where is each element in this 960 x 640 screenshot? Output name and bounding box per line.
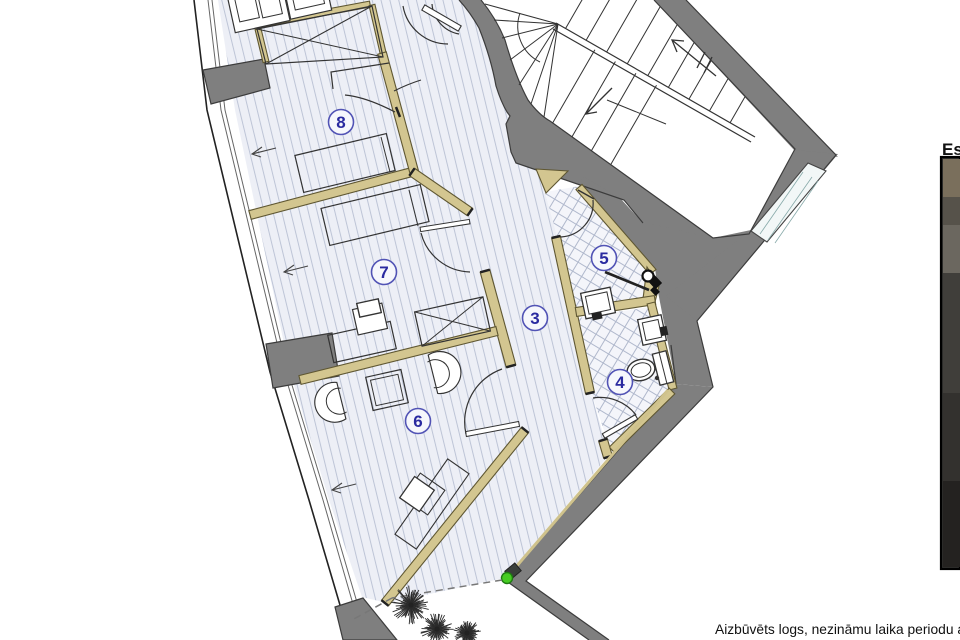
svg-text:8: 8 xyxy=(336,113,345,132)
svg-text:Aizbūvēts logs, nezināmu laika: Aizbūvēts logs, nezināmu laika periodu a… xyxy=(715,622,960,637)
svg-text:6: 6 xyxy=(413,412,422,431)
svg-text:5: 5 xyxy=(599,249,608,268)
svg-text:4: 4 xyxy=(615,373,625,392)
svg-text:3: 3 xyxy=(530,309,539,328)
svg-text:7: 7 xyxy=(379,263,388,282)
